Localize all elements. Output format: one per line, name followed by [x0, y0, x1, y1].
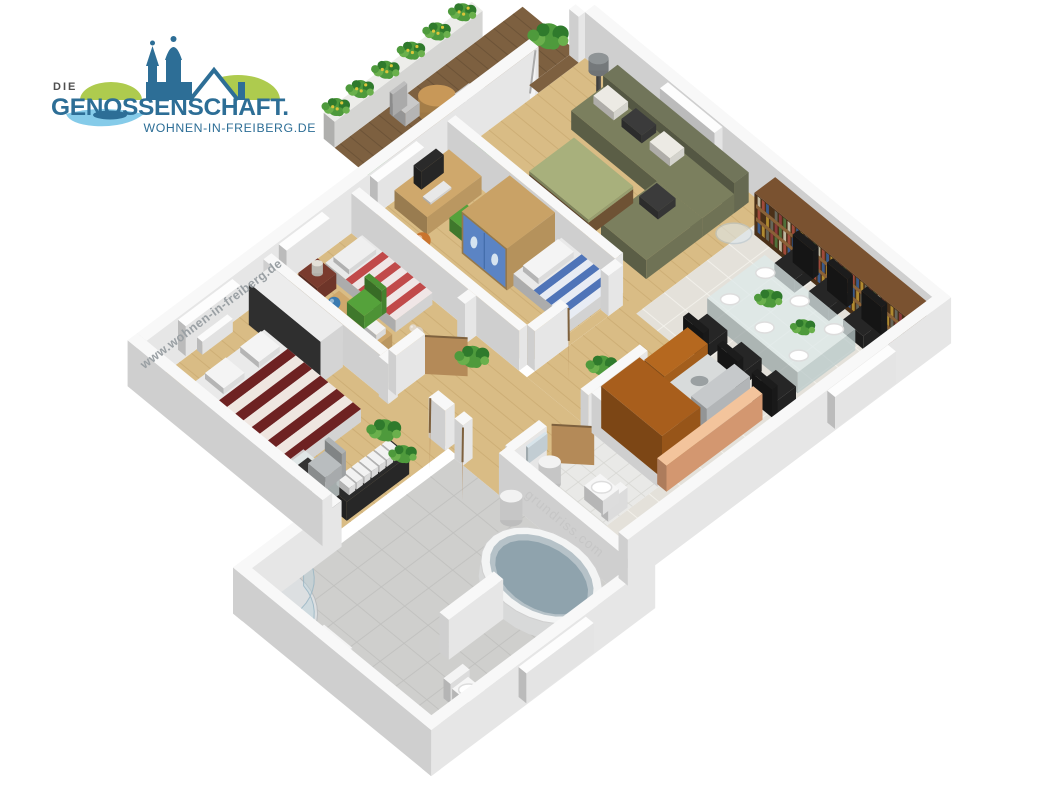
wall-kids1-hall-a — [457, 289, 476, 344]
wall-clock — [716, 223, 752, 243]
bath-sink — [500, 490, 522, 527]
logo-subtitle: WOHNEN-IN-FREIBERG.DE — [144, 121, 316, 135]
page: www.wohnen-in-freiberg.degrundriss.com D… — [0, 0, 1053, 790]
plate-6 — [789, 350, 808, 361]
logo-title: GENOSSENSCHAFT. — [51, 94, 289, 121]
kitchen-sink — [691, 376, 709, 386]
floor-lamp-shade — [588, 53, 608, 77]
plate-3 — [824, 324, 843, 335]
plate-4 — [721, 294, 740, 305]
plate-1 — [756, 267, 775, 278]
brand-logo: DIE GENOSSENSCHAFT. WOHNEN-IN-FREIBERG.D… — [50, 34, 322, 136]
wall-kids2-hall-a — [601, 259, 623, 316]
plate-5 — [755, 322, 774, 333]
wc-toilet-seat — [592, 482, 612, 494]
wall-west-a — [569, 4, 585, 63]
logo-kicker: DIE — [53, 81, 77, 93]
plate-2 — [790, 296, 809, 307]
kids1-lamp — [312, 260, 323, 276]
